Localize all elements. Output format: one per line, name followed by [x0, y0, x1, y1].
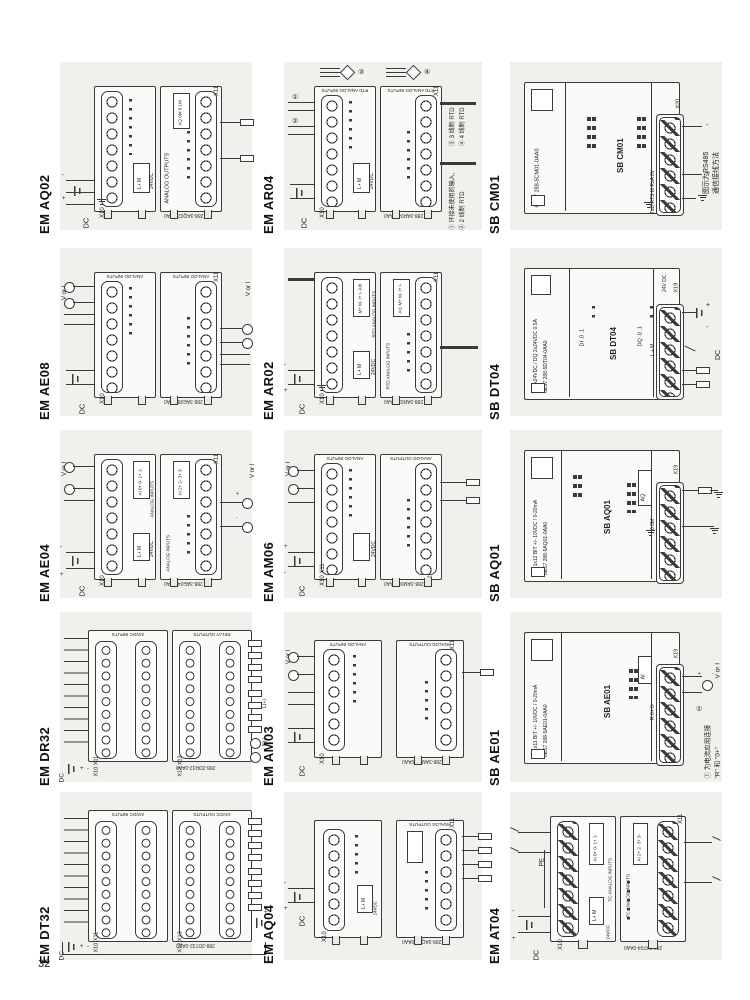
mark-1: ① — [292, 94, 298, 101]
polarity-plus: + — [236, 492, 239, 497]
cell-sb-ae01: SB AE01 AI 1x11 BIT +/- 10VDC / 0-20mA 6… — [486, 610, 722, 788]
wire — [682, 526, 714, 527]
source-circle — [64, 484, 75, 495]
terminal-strip — [321, 463, 343, 575]
part-number: 288-3AR02-0AA0 — [384, 398, 423, 404]
led-grid — [587, 117, 596, 149]
input-caption: ANALOG INPUTS — [151, 480, 156, 517]
led-dots — [407, 499, 410, 547]
board-window — [531, 639, 553, 661]
input-pin-box: AI1 M+ M- I+ I- — [393, 279, 410, 317]
output-pin-box: AQ 0M 0 1M — [173, 93, 190, 129]
din-foot — [138, 210, 146, 219]
dc-label: DC — [533, 949, 541, 960]
connector-x11: X11 — [450, 640, 456, 650]
wire — [288, 370, 314, 371]
din-foot — [424, 578, 432, 587]
load-resistor — [240, 119, 254, 126]
led-dots — [627, 881, 630, 925]
diagram-panel: L+ M 24VDC ANALOG OUTPUTS X10 X11 288-3A… — [284, 792, 482, 960]
input-pin-box: AI 2+ 2- 3+ 3- — [633, 823, 648, 865]
input-caption: ANALOG INPUTS — [327, 456, 364, 461]
polarity-plus: + — [62, 196, 66, 202]
terminal-strip — [415, 463, 437, 575]
terminal-strip — [101, 459, 123, 575]
wire — [66, 568, 94, 569]
note-2wire-rtd: ② 2 线制 RTD — [460, 191, 466, 230]
load-resistor — [466, 497, 480, 504]
wire — [684, 882, 712, 883]
diagram-panel: AI 0+ 0- 1+ 1- TC ANALOG INPUTS L+ M 24V… — [510, 792, 722, 960]
ground-icon — [644, 202, 653, 208]
module-name: SB CM01 — [487, 175, 502, 234]
output-caption: ANALOG OUTPUTS — [166, 152, 172, 203]
wire — [66, 552, 94, 553]
divider — [561, 633, 562, 761]
supply-voltage: 24VDC — [150, 173, 155, 189]
wire — [73, 488, 94, 489]
module-right-half: ANALOG INPUTS — [160, 272, 222, 398]
led-dots — [407, 333, 410, 373]
source-circle — [64, 282, 75, 293]
battery-icon — [696, 308, 704, 318]
wire — [386, 72, 406, 73]
input-caption: ANALOG INPUTS — [173, 274, 210, 279]
input-caption: RTD ANALOG INPUTS — [373, 290, 378, 337]
terminal-block — [656, 304, 684, 400]
wire — [440, 162, 476, 165]
diagram-panel: ③ ④ RTD ANALOG INPUTS L+ M 24VDC RTD ANA… — [284, 62, 482, 230]
polarity-plus: + — [80, 944, 84, 950]
wire — [62, 942, 63, 954]
divider — [651, 633, 652, 761]
terminal-strip — [135, 821, 157, 939]
polarity-minus: - — [706, 122, 708, 129]
module-right-half: ANALOG INPUTS AI 2+ 2- 3+ 3- — [160, 454, 222, 580]
wire — [518, 852, 550, 853]
diagram-panel: ANALOG INPUTS AI 0+ 0- 1+ 1- L+ M 24VDC … — [60, 430, 252, 598]
board-title: SB AQ01 — [604, 500, 612, 534]
polarity-minus: - — [60, 544, 62, 550]
divider — [653, 269, 654, 397]
din-foot — [204, 396, 212, 405]
output-caption: ANALOG OUTPUTS — [390, 456, 432, 461]
wire — [220, 158, 240, 159]
din-foot — [204, 210, 212, 219]
power-pins: L+ M — [362, 898, 367, 909]
source-circle — [288, 652, 299, 663]
wire — [66, 370, 94, 371]
module-left-half: RTD ANALOG INPUTS M+ M- I+ I- AI0 L+ M 2… — [314, 272, 376, 398]
module-left-half: RTD ANALOG INPUTS L+ M 24VDC — [314, 86, 376, 212]
connector-x10-x11: X10 X11 — [95, 755, 101, 776]
note-4wire-rtd: ④ 4 线制 RTD — [460, 107, 466, 146]
source-circle — [64, 462, 75, 473]
module-name: EM AM03 — [261, 726, 276, 786]
wire — [288, 502, 314, 503]
wire — [544, 850, 545, 908]
dc-label: DC — [301, 217, 309, 228]
load-resistor — [466, 479, 480, 486]
power-pin-box: L+ M — [357, 885, 373, 913]
module-name: EM AE04 — [37, 544, 52, 602]
wire — [64, 314, 94, 315]
din-foot — [326, 210, 334, 219]
terminal-strip — [323, 649, 345, 751]
wire — [64, 500, 94, 501]
input-caption: RTD ANALOG INPUTS — [322, 88, 369, 93]
module-name: EM AQ04 — [261, 905, 276, 964]
module-left-half: ANALOG INPUTS 24VDC — [314, 454, 376, 580]
ground-icon — [646, 530, 655, 536]
pin-labels: R 0+ 0- — [651, 703, 656, 720]
terminal-strip — [101, 91, 123, 207]
connector-x10-x11: X10 X11 — [95, 931, 101, 952]
din-foot — [358, 578, 366, 587]
battery-icon — [526, 920, 534, 930]
input-caption: 24VDC INPUTS — [112, 812, 144, 817]
thermocouple-junction — [712, 836, 721, 841]
small-label-box — [531, 383, 545, 393]
wire — [320, 76, 340, 77]
wire — [320, 72, 340, 73]
power-pin-box: L+ M — [353, 163, 370, 193]
terminal-strip — [321, 277, 343, 393]
module-right-half: RTD ANALOG INPUTS — [380, 86, 442, 212]
diagram-panel: RTD ANALOG INPUTS M+ M- I+ I- AI0 L+ M 2… — [284, 248, 482, 416]
led-grid — [627, 483, 636, 513]
wire — [462, 878, 478, 879]
din-foot — [392, 396, 400, 405]
battery-icon — [74, 186, 82, 196]
wire — [288, 102, 314, 103]
battery-icon — [72, 374, 80, 384]
input-caption: ANALOG INPUTS — [330, 642, 367, 647]
output-caption: ANALOG OUTPUTS — [409, 642, 451, 647]
led-dots — [425, 871, 428, 911]
io-spec: AI 1x11 BIT +/- 10VDC / 0-20mA — [534, 685, 539, 757]
wire — [297, 674, 314, 675]
wire — [288, 278, 314, 281]
polarity-minus: - — [712, 672, 714, 677]
battery-icon — [296, 188, 304, 198]
wire — [288, 704, 314, 705]
input-pin-box: AI 0+ 0- 1+ 1- — [589, 823, 604, 865]
led-dots — [355, 835, 358, 875]
v-or-i-label: V or I — [716, 662, 723, 678]
din-foot — [204, 578, 212, 587]
power-pins: L+ M — [138, 178, 143, 189]
thermocouple-junction — [510, 847, 519, 852]
load-resistor — [240, 155, 254, 162]
module-right-half: ANALOG OUTPUTS — [396, 640, 464, 758]
screw-terminals — [659, 667, 681, 763]
screw-terminals — [659, 307, 681, 397]
wire — [290, 198, 314, 199]
din-foot — [424, 396, 432, 405]
terminal-strip — [179, 641, 201, 759]
diagram-panel: ANALOG INPUTS ANALOG INPUTS X10 X11 288-… — [60, 248, 252, 416]
note-rs485-line1: 图示为RS485 — [703, 152, 710, 194]
terminal-strip — [435, 829, 457, 931]
board-window — [531, 89, 553, 111]
module-left-half: L+ M 24VDC — [314, 820, 382, 938]
io-spec: DI 2x24VDC / DQ 2x24VDC 0.5A — [534, 319, 539, 393]
terminal-strip — [195, 281, 217, 393]
din-foot — [170, 210, 178, 219]
dq-label: DQ .0 .1 — [639, 326, 645, 346]
wire — [220, 328, 242, 329]
diagram-panel: ANALOG INPUTS ANALOG OUTPUTS X10 X11 288… — [284, 612, 482, 782]
polarity-plus: + — [284, 906, 288, 912]
wire — [288, 384, 314, 385]
module-name: EM AQ02 — [37, 175, 52, 234]
thermocouple-junction — [712, 876, 721, 881]
wire — [290, 184, 314, 185]
wire — [682, 312, 696, 313]
din-foot — [424, 210, 432, 219]
ground-icon — [317, 385, 326, 391]
wire — [682, 490, 698, 491]
battery-icon — [294, 556, 302, 566]
polarity-minus: - — [512, 908, 514, 914]
wire — [220, 354, 250, 355]
power-pin-box — [353, 533, 370, 561]
cell-em-at04: EM AT04 AI 0+ 0- 1+ 1- TC ANALOG INPUTS … — [486, 790, 722, 966]
terminal-strip — [95, 821, 117, 939]
wire — [386, 68, 406, 69]
mark-2: ② — [292, 118, 298, 125]
aq-label: AQ — [642, 493, 648, 501]
wire — [462, 850, 478, 851]
polarity-plus: + — [284, 544, 288, 550]
wire — [462, 672, 480, 673]
din-foot — [170, 396, 178, 405]
module-right-half: ANALOG OUTPUTS AQ 0M 0 1M — [160, 86, 222, 212]
battery-icon — [294, 374, 302, 384]
battery-icon — [294, 732, 302, 742]
polarity-minus: - — [87, 944, 89, 950]
supply-voltage: 24V DC — [663, 274, 668, 292]
power-pin-box: L+ M — [133, 533, 150, 561]
connector-x10: X10 — [322, 931, 328, 942]
output-pins: AQ 0M 0 1M — [179, 100, 184, 125]
wire — [440, 482, 466, 483]
diagram-panel: 6ES7 288-5CM01-0AA0 SB CM01 TxD RTS M Rx… — [510, 62, 722, 230]
ai-box: AI — [638, 656, 652, 684]
input-caption: RTD ANALOG INPUTS — [388, 88, 435, 93]
cell-em-aq02: EM AQ02 L+ M 24VDC ANALOG OUTPUTS AQ 0M … — [36, 60, 252, 236]
polarity-plus: + — [698, 672, 701, 677]
part-number: 288-3AR04-0AA0 — [384, 212, 423, 218]
module-right-half: RELAY OUTPUTS — [172, 630, 252, 762]
terminal-strip — [415, 95, 437, 207]
led-dots — [349, 469, 352, 521]
din-foot — [326, 578, 334, 587]
led-dots — [407, 131, 410, 179]
module-right-half: ANALOG OUTPUTS — [396, 820, 464, 938]
diagram-panel: ANALOG INPUTS 24VDC ANALOG OUTPUTS X10 X… — [284, 430, 482, 598]
wire — [682, 692, 702, 693]
input-caption: ANALOG INPUTS — [167, 534, 172, 571]
wire — [440, 102, 476, 105]
divider — [561, 451, 562, 579]
wire — [297, 656, 314, 657]
module-name: EM AE08 — [37, 362, 52, 420]
din-foot — [170, 578, 178, 587]
supply-voltage: 24VDC — [372, 359, 377, 375]
board-window — [531, 457, 553, 479]
ground-icon — [710, 528, 719, 534]
dc-label: DC — [299, 915, 307, 926]
screw-terminals — [659, 485, 681, 581]
module-name: SB DT04 — [487, 364, 502, 420]
din-foot — [360, 756, 368, 765]
terminal-strip — [195, 91, 217, 207]
wire — [684, 842, 712, 843]
polarity-minus: - — [284, 362, 286, 368]
wire — [220, 122, 240, 123]
terminal-strip — [135, 641, 157, 759]
led-grid — [637, 117, 646, 149]
wire — [73, 286, 94, 287]
polarity-minus: - — [284, 570, 286, 576]
din-foot — [358, 210, 366, 219]
wire — [64, 324, 94, 325]
module-name: SB AQ01 — [487, 544, 502, 602]
terminal-block — [656, 482, 684, 584]
pe-label: PE — [540, 857, 547, 866]
input-caption: RTD ANALOG INPUTS — [387, 342, 392, 389]
cell-em-aq04: EM AQ04 L+ M 24VDC ANALOG OUTPUTS X10 X1… — [260, 790, 482, 966]
polarity-plus: + — [284, 388, 288, 394]
small-label-box — [531, 749, 545, 759]
wire — [220, 364, 250, 365]
wire — [73, 302, 94, 303]
cell-sb-dt04: SB DT04 DI 2x24VDC / DQ 2x24VDC 0.5A 6ES… — [486, 246, 722, 422]
terminal-strip — [101, 281, 123, 393]
supply-voltage: 24VDC — [370, 173, 375, 189]
wire — [320, 68, 340, 69]
led-dots — [187, 317, 190, 365]
polarity-plus: + — [512, 936, 516, 942]
source-circle — [64, 298, 75, 309]
module-name: EM DR32 — [37, 727, 52, 786]
connector-x11: X11 — [434, 86, 440, 96]
output-pin-box — [407, 831, 423, 863]
module-left-half: 24VDC INPUTS — [88, 630, 168, 762]
wire — [66, 204, 94, 205]
power-pins: L+ M — [358, 178, 363, 189]
terminal-strip — [95, 641, 117, 759]
wire — [66, 384, 94, 385]
connector-x20: X20 — [677, 98, 683, 108]
led-dots — [353, 655, 356, 703]
cell-em-ar04: EM AR04 ③ ④ RTD ANALOG INPUTS L+ M 24VDC… — [260, 60, 482, 236]
note-rs485-line2: 通信接线方法 — [713, 152, 720, 194]
module-left-half: AI 0+ 0- 1+ 1- TC ANALOG INPUTS L+ M 24V… — [550, 816, 616, 942]
input-caption: ANALOG INPUTS — [107, 274, 144, 279]
supply-voltage: 24VDC — [607, 924, 612, 939]
module-right-half: TC ANALOG INPUTS AI 2+ 2- 3+ 3- — [620, 816, 686, 942]
terminal-strip — [195, 459, 217, 575]
din-foot — [578, 940, 588, 949]
source-circle — [242, 338, 253, 349]
led-dots — [425, 681, 428, 725]
wire — [220, 502, 242, 503]
supply-voltage: 24VDC — [372, 541, 377, 557]
source-circle — [242, 498, 253, 509]
rtd-sensor-icon — [406, 65, 422, 81]
polarity-minus: - — [87, 766, 89, 772]
power-pin-box: L+ M — [133, 163, 150, 193]
diagram-panel: DI 2x24VDC / DQ 2x24VDC 0.5A 6ES7 288-5D… — [510, 248, 722, 416]
source-circle — [242, 324, 253, 335]
din-foot — [358, 396, 366, 405]
source-circle — [702, 680, 713, 691]
power-pins: L+ M — [593, 910, 598, 921]
cell-em-ae08: EM AE08 ANALOG INPUTS ANALOG INPUTS X10 … — [36, 246, 252, 422]
cell-em-dt32: EM DT32 24VDC INPUTS 24VDC OUTPUTS X10 X… — [36, 790, 252, 966]
connector-x11: X11 — [214, 454, 220, 464]
input-caption: 24VDC INPUTS — [112, 632, 144, 637]
polarity-plus: + — [80, 766, 84, 772]
diagram-panel: L+ M 24VDC ANALOG OUTPUTS AQ 0M 0 1M X10… — [60, 62, 252, 230]
dc-label: DC — [83, 217, 91, 228]
power-pin-box: L+ M — [353, 351, 370, 379]
wire — [386, 76, 406, 77]
din-foot — [648, 940, 658, 949]
note-loop-unused: ① 环接未使用的输入, — [450, 173, 456, 230]
module-name: EM AR04 — [261, 175, 276, 234]
din-foot — [104, 578, 112, 587]
cell-sb-cm01: SB CM01 6ES7 288-5CM01-0AA0 SB CM01 TxD … — [486, 60, 722, 236]
divider — [569, 269, 570, 397]
terminal-strip — [219, 821, 241, 939]
wire — [440, 346, 478, 349]
din-foot — [332, 756, 340, 765]
input-pin-box: M+ M- I+ I- AI0 — [353, 279, 370, 317]
din-foot — [414, 936, 422, 945]
terminal-strip — [435, 649, 457, 751]
load-resistor — [696, 381, 710, 388]
din-foot — [392, 578, 400, 587]
input-pins: AI 0+ 0- 1+ 1- — [139, 467, 144, 495]
connector-x10: X10 — [320, 753, 326, 764]
mark-3: ③ — [358, 69, 364, 76]
cell-em-am03: EM AM03 ANALOG INPUTS ANALOG OUTPUTS X10… — [260, 610, 482, 788]
din-foot — [104, 210, 112, 219]
input-wire-bundle — [64, 638, 88, 750]
led-dots — [129, 99, 132, 155]
cell-sb-aq01: SB AQ01 AQ 1x12 BIT +/- 10VDC / 0-20mA 6… — [486, 428, 722, 604]
io-spec: AQ 1x12 BIT +/- 10VDC / 0-20mA — [534, 500, 539, 575]
module-left-half: ANALOG INPUTS — [94, 272, 156, 398]
small-label-box — [531, 567, 545, 577]
part-number: 288-2DT32-0AA0 — [176, 942, 215, 948]
v-or-i-label: V or I — [250, 464, 256, 478]
screw-terminal-strip — [657, 821, 679, 937]
dc-label: DC — [299, 765, 307, 776]
module-left-half: ANALOG INPUTS AI 0+ 0- 1+ 1- L+ M 24VDC — [94, 454, 156, 580]
supply-voltage: 24VDC — [150, 541, 155, 557]
output-caption: 24VDC OUTPUTS — [193, 812, 230, 817]
polarity-minus: - — [236, 516, 238, 521]
v-or-i-label: V or I — [246, 282, 252, 296]
wire — [288, 902, 314, 903]
din-foot — [442, 756, 450, 765]
switch-contact — [684, 346, 695, 352]
